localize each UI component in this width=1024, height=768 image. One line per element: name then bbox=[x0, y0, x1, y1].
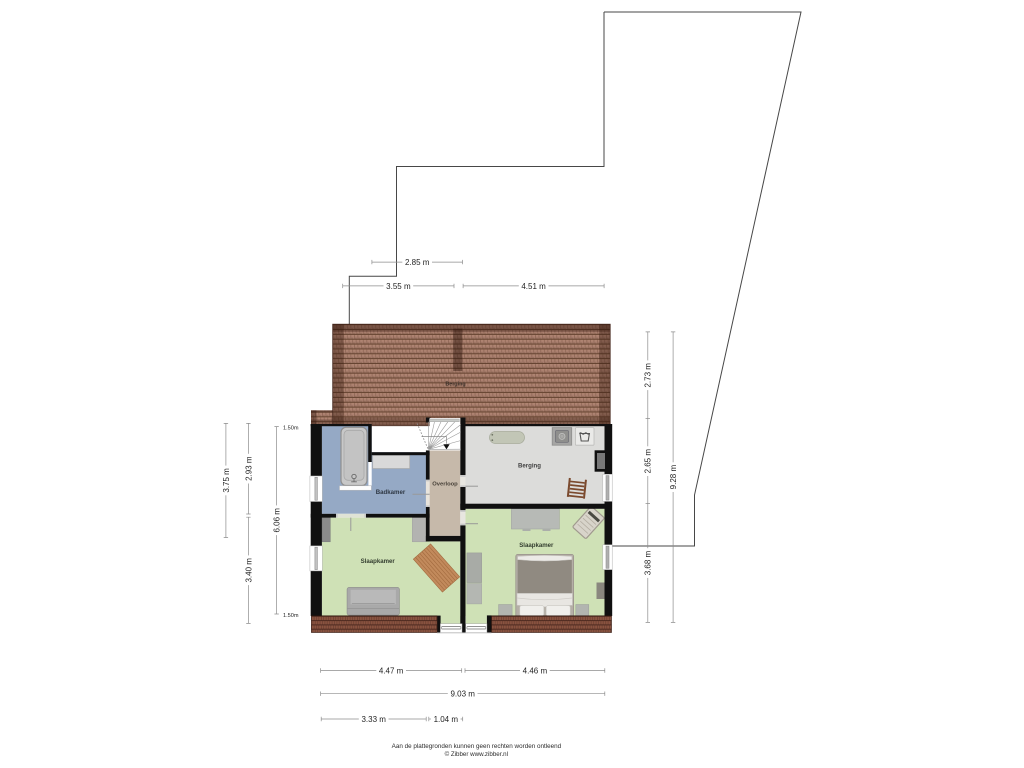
svg-text:3.33 m: 3.33 m bbox=[361, 715, 386, 724]
svg-text:Aan de plattegronden kunnen ge: Aan de plattegronden kunnen geen rechten… bbox=[392, 743, 562, 750]
svg-text:3.55 m: 3.55 m bbox=[386, 282, 411, 291]
svg-text:3.75 m: 3.75 m bbox=[222, 468, 231, 493]
svg-text:1.50m: 1.50m bbox=[283, 613, 299, 619]
svg-text:1.50m: 1.50m bbox=[283, 426, 299, 432]
svg-text:2.73 m: 2.73 m bbox=[644, 363, 653, 388]
svg-text:© Zibber www.zibber.nl: © Zibber www.zibber.nl bbox=[445, 751, 508, 758]
svg-text:9.03 m: 9.03 m bbox=[450, 690, 475, 699]
svg-text:Overloop: Overloop bbox=[432, 481, 458, 487]
svg-text:9.28 m: 9.28 m bbox=[669, 465, 678, 490]
svg-text:Slaapkamer: Slaapkamer bbox=[519, 542, 554, 549]
svg-text:4.47 m: 4.47 m bbox=[379, 666, 404, 675]
svg-text:1.04 m: 1.04 m bbox=[434, 715, 459, 724]
svg-text:4.51 m: 4.51 m bbox=[521, 282, 546, 291]
svg-text:Berging: Berging bbox=[445, 381, 465, 387]
svg-text:2.93 m: 2.93 m bbox=[244, 456, 253, 481]
svg-text:6.06 m: 6.06 m bbox=[273, 508, 282, 533]
svg-text:Badkamer: Badkamer bbox=[376, 489, 406, 496]
svg-text:2.85 m: 2.85 m bbox=[405, 258, 430, 267]
svg-text:3.68 m: 3.68 m bbox=[644, 550, 653, 575]
svg-text:4.46 m: 4.46 m bbox=[523, 666, 548, 675]
svg-text:3.40 m: 3.40 m bbox=[244, 558, 253, 583]
svg-text:Berging: Berging bbox=[518, 462, 541, 469]
svg-text:2.65 m: 2.65 m bbox=[644, 449, 653, 474]
svg-text:Slaapkamer: Slaapkamer bbox=[361, 558, 396, 565]
